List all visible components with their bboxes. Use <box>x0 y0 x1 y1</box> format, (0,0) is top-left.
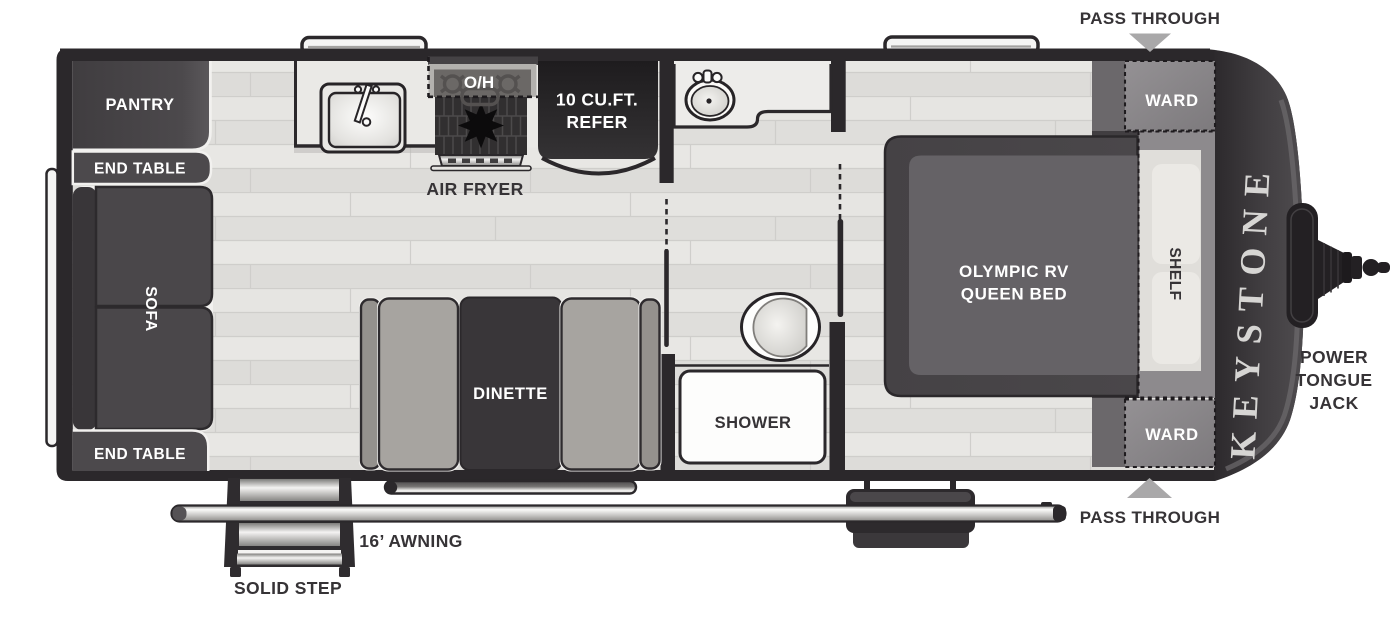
svg-text:QUEEN BED: QUEEN BED <box>961 285 1067 304</box>
svg-text:REFER: REFER <box>566 112 627 132</box>
svg-text:WARD: WARD <box>1145 92 1199 110</box>
svg-text:PANTRY: PANTRY <box>106 96 175 114</box>
svg-text:PASS THROUGH: PASS THROUGH <box>1080 508 1221 527</box>
svg-text:JACK: JACK <box>1309 393 1358 413</box>
svg-text:END TABLE: END TABLE <box>94 446 186 463</box>
svg-text:10 CU.FT.: 10 CU.FT. <box>556 90 638 110</box>
svg-text:TONGUE: TONGUE <box>1296 370 1373 390</box>
svg-text:16’ AWNING: 16’ AWNING <box>359 531 463 551</box>
svg-text:PASS THROUGH: PASS THROUGH <box>1080 9 1221 28</box>
svg-text:OLYMPIC RV: OLYMPIC RV <box>959 262 1069 281</box>
svg-text:O/H: O/H <box>464 73 494 92</box>
svg-text:WARD: WARD <box>1145 426 1199 444</box>
svg-text:END TABLE: END TABLE <box>94 161 186 178</box>
svg-text:DINETTE: DINETTE <box>473 385 548 403</box>
svg-text:SOFA: SOFA <box>142 286 159 332</box>
svg-text:AIR FRYER: AIR FRYER <box>426 179 523 199</box>
svg-text:SOLID STEP: SOLID STEP <box>234 578 342 598</box>
svg-text:SHOWER: SHOWER <box>715 414 792 432</box>
svg-text:SHELF: SHELF <box>1166 247 1183 300</box>
svg-text:POWER: POWER <box>1300 347 1368 367</box>
